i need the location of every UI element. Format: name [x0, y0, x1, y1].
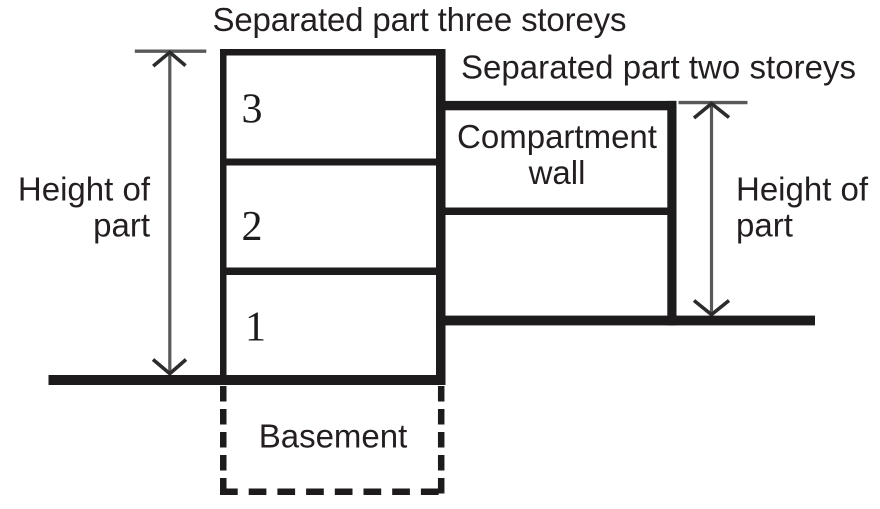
- svg-text:3: 3: [242, 87, 263, 133]
- svg-text:Separated part three storeys: Separated part three storeys: [213, 1, 627, 38]
- svg-text:Compartment: Compartment: [457, 118, 657, 155]
- svg-text:wall: wall: [528, 154, 586, 191]
- svg-text:2: 2: [242, 204, 263, 250]
- svg-text:Separated part two storeys: Separated part two storeys: [461, 49, 856, 86]
- svg-text:part: part: [93, 207, 150, 244]
- svg-text:Height of: Height of: [18, 171, 151, 208]
- svg-text:Basement: Basement: [259, 418, 408, 455]
- svg-text:part: part: [736, 207, 793, 244]
- svg-text:Height of: Height of: [736, 171, 869, 208]
- svg-text:1: 1: [245, 305, 266, 351]
